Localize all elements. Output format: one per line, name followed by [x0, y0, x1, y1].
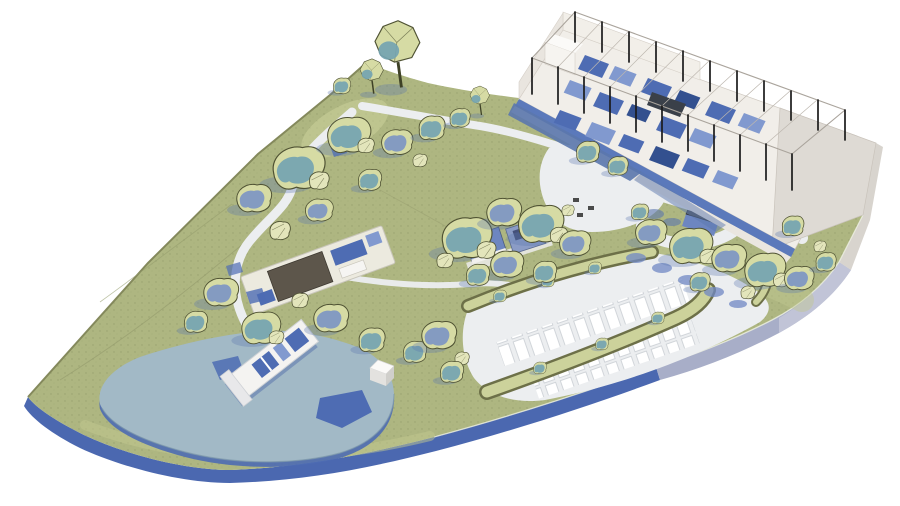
- site-plan-render: [0, 0, 900, 506]
- masterplan-canvas: [0, 0, 900, 506]
